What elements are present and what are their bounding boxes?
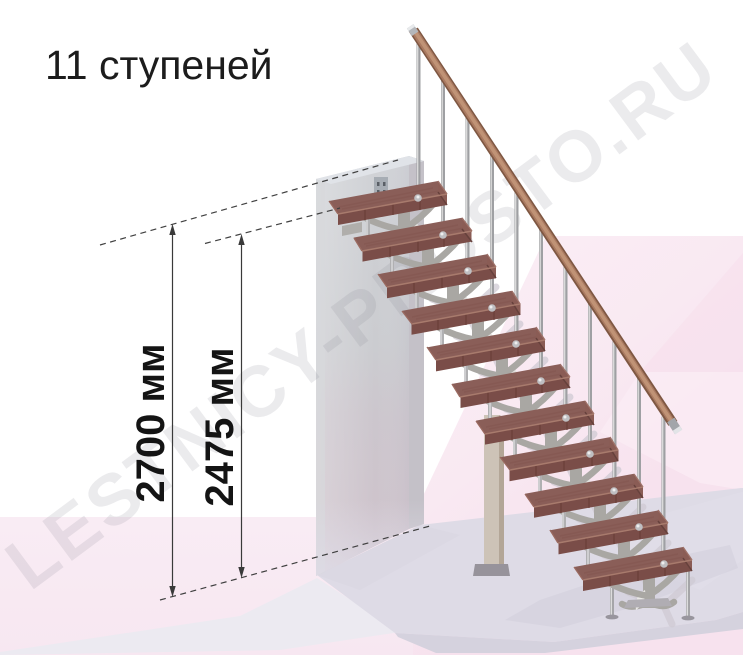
svg-text:2475 мм: 2475 мм — [198, 347, 242, 506]
svg-text:11 ступеней: 11 ступеней — [45, 42, 273, 88]
svg-text:2700 мм: 2700 мм — [129, 343, 173, 502]
